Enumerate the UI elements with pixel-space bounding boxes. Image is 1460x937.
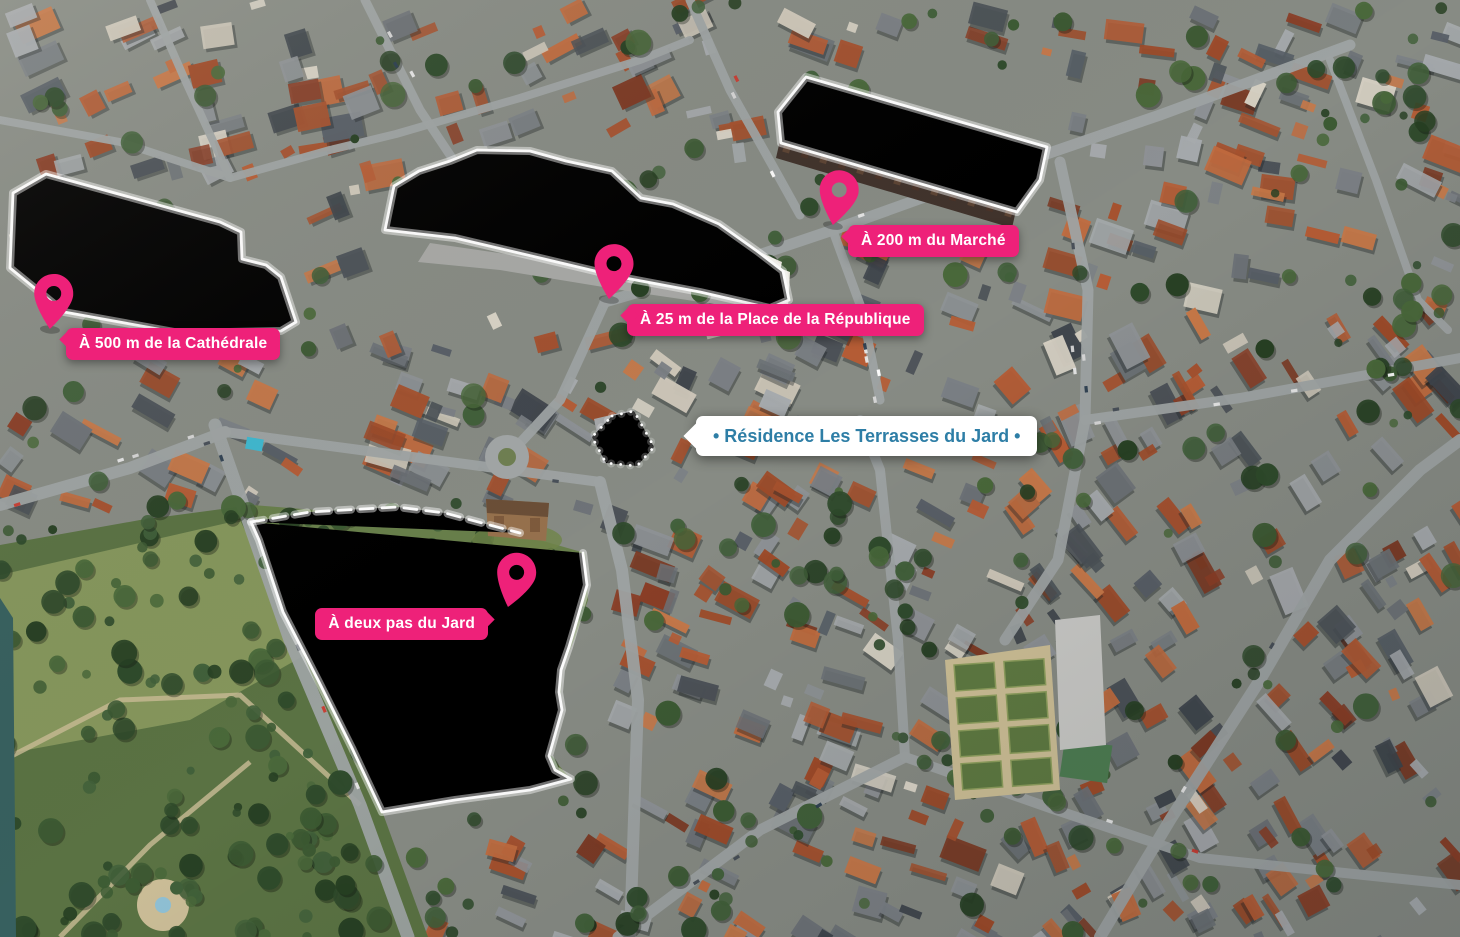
- distance-label-republique-text: À 25 m de la Place de la République: [640, 311, 911, 328]
- residence-name-label: • Résidence Les Terrasses du Jard •: [696, 416, 1037, 456]
- satellite-imagery: [0, 0, 1460, 937]
- aerial-map: À 500 m de la Cathédrale À 25 m de la Pl…: [0, 0, 1460, 937]
- residence-name-text: • Résidence Les Terrasses du Jard •: [713, 426, 1020, 446]
- distance-label-jard-text: À deux pas du Jard: [328, 615, 475, 632]
- distance-label-republique: À 25 m de la Place de la République: [627, 304, 924, 336]
- distance-label-jard: À deux pas du Jard: [315, 608, 488, 640]
- distance-label-cathedrale-text: À 500 m de la Cathédrale: [79, 335, 267, 352]
- distance-label-marche-text: À 200 m du Marché: [861, 232, 1006, 249]
- distance-label-marche: À 200 m du Marché: [848, 225, 1019, 257]
- lighting-overlay: [0, 0, 1460, 937]
- distance-label-cathedrale: À 500 m de la Cathédrale: [66, 328, 280, 360]
